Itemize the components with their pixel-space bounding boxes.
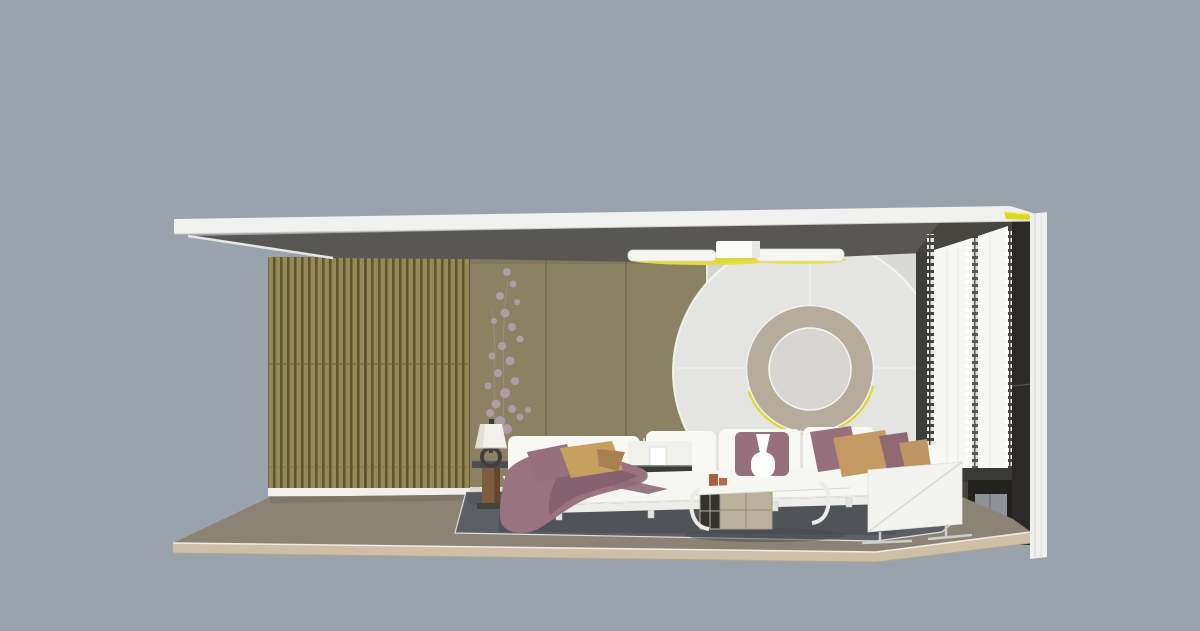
sofa-leg-2 xyxy=(648,510,654,518)
right-frame-face xyxy=(1030,212,1047,559)
light-blade-right xyxy=(756,249,844,261)
light-center-box-shade xyxy=(752,241,760,258)
scene-canvas[interactable] xyxy=(0,0,1200,631)
light-blade-left xyxy=(628,250,716,261)
table-shadow xyxy=(685,528,845,542)
curtain-hatch-left xyxy=(927,234,934,466)
vase-body xyxy=(751,452,775,478)
niche-box xyxy=(650,447,666,466)
baseboard xyxy=(268,488,470,496)
slat-wall-slats xyxy=(268,257,470,489)
right-frame xyxy=(1030,212,1047,559)
sofa-leg-4 xyxy=(846,498,852,507)
curtain-hatch-mid1 xyxy=(965,240,973,468)
side-table-pedestal-shade xyxy=(494,468,500,504)
curtain-hatch-right xyxy=(1004,228,1013,474)
dark-column xyxy=(1012,218,1032,545)
render-viewport[interactable] xyxy=(0,0,1200,631)
sofa-leg-3 xyxy=(772,502,778,511)
sheer-curtain-2 xyxy=(978,226,1008,474)
curtain-hatch-mid2 xyxy=(972,238,978,470)
slat-wall xyxy=(268,257,470,489)
